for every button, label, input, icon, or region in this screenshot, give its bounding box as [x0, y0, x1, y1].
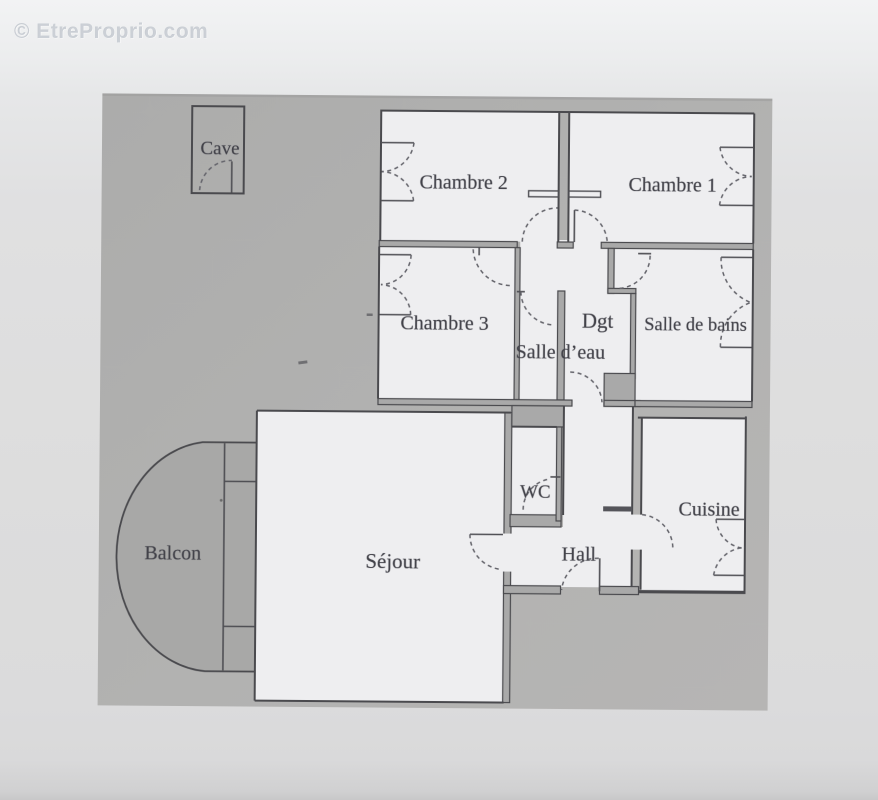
room-label-salle-de-bains: Salle de bains	[644, 315, 747, 337]
cuisine-door-opening	[630, 515, 642, 550]
floorplan-drawing	[0, 0, 878, 800]
room-label-cave: Cave	[200, 138, 239, 160]
floorplan: Cave Chambre 2 Chambre 1 Chambre 3 Dgt S…	[0, 0, 878, 800]
room-label-cuisine: Cuisine	[678, 498, 739, 521]
room-label-chambre3: Chambre 3	[400, 312, 488, 336]
room-label-chambre1: Chambre 1	[628, 174, 716, 198]
room-label-hall: Hall	[561, 543, 596, 566]
room-label-sejour: Séjour	[365, 549, 420, 574]
room-label-chambre2: Chambre 2	[419, 171, 507, 195]
scanned-floorplan-page: © EtreProprio.com	[0, 0, 878, 800]
hall-floor	[511, 527, 563, 587]
room-label-balcon: Balcon	[144, 542, 201, 565]
room-label-salle-deau: Salle d’eau	[516, 341, 606, 365]
room-label-dgt: Dgt	[582, 309, 614, 334]
radiator	[603, 506, 632, 511]
room-label-wc: WC	[520, 482, 551, 504]
